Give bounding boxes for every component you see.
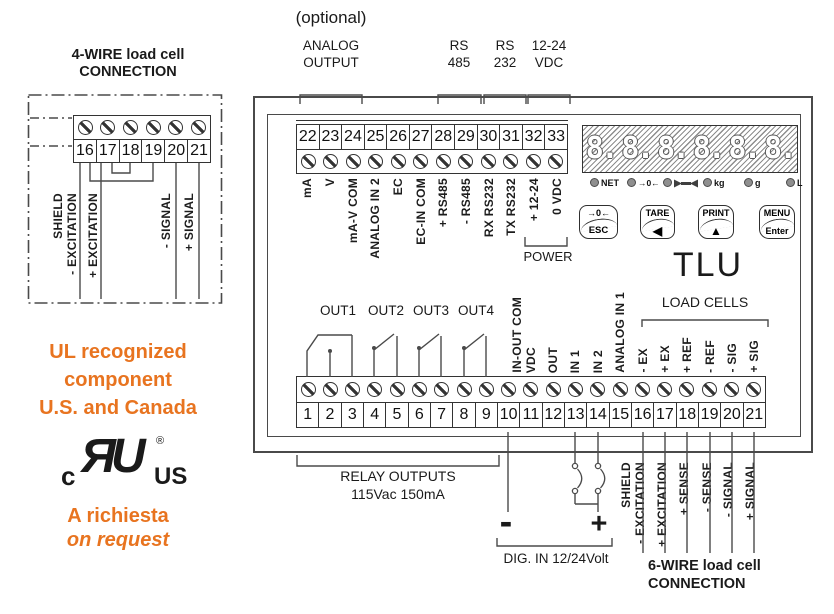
display-digit: 8. <box>726 127 760 171</box>
terminal-number: 26 <box>386 125 409 149</box>
four-wire-label-neg-signal: - SIGNAL <box>160 193 174 248</box>
terminal-label-pos-1224: + 12-24 <box>528 178 542 221</box>
g-led-label: g <box>755 178 761 188</box>
terminal-label-neg-ref: - REF <box>704 340 718 373</box>
terminal-label-pos-rs485: + RS485 <box>437 178 451 227</box>
top-terminal-numbers: 222324252627282930313233 <box>297 125 567 149</box>
screw-terminal-icon <box>635 382 650 397</box>
terminal-number: 5 <box>385 403 407 428</box>
ul-text-line3: U.S. and Canada <box>13 397 223 420</box>
tare-left-key[interactable]: TARE ◀ <box>640 205 675 239</box>
four-wire-number-row: 161718192021 <box>74 139 210 163</box>
terminal-label-neg-ex: - EX <box>637 348 651 373</box>
screw-terminal-icon <box>323 382 338 397</box>
terminal-label-analog-in2: ANALOG IN 2 <box>369 178 383 259</box>
terminal-number: 12 <box>542 403 564 428</box>
screw-terminal-icon <box>546 382 561 397</box>
rs485-label-1: RS <box>437 38 481 53</box>
print-key-label: PRINT <box>699 208 733 218</box>
terminal-number: 6 <box>408 403 430 428</box>
top-terminal-screws <box>297 149 567 174</box>
screw-terminal-icon <box>100 120 115 135</box>
model-name: TLU <box>653 246 763 285</box>
four-wire-title-line2: CONNECTION <box>30 64 226 80</box>
screw-terminal-icon <box>501 382 516 397</box>
terminal-label-pos-ref: + REF <box>681 337 695 373</box>
display-digit: 8. <box>762 127 796 171</box>
screw-terminal-icon <box>679 382 694 397</box>
terminal-number: 16 <box>631 403 653 428</box>
four-wire-title-line1: 4-WIRE load cell <box>30 47 226 63</box>
screw-terminal-icon <box>345 382 360 397</box>
four-wire-label-shield: SHIELD <box>52 193 66 239</box>
terminal-number: 7 <box>430 403 452 428</box>
ul-text-line2: component <box>13 369 223 392</box>
request-text-italian: A richiesta <box>13 505 223 528</box>
out3-label: OUT3 <box>408 303 454 318</box>
screw-terminal-icon <box>724 382 739 397</box>
screw-terminal-icon <box>436 154 451 169</box>
six-wire-label-shield: SHIELD <box>620 462 634 508</box>
kg-led-label: kg <box>714 178 725 188</box>
screw-terminal-icon <box>568 382 583 397</box>
bottom-terminal-strip: 123456789101112131415161718192021 <box>296 376 766 428</box>
screw-terminal-icon <box>613 382 628 397</box>
screw-terminal-icon <box>503 154 518 169</box>
menu-key-label: MENU <box>760 208 794 218</box>
ul-logo-us: US <box>154 463 187 491</box>
terminal-number: 18 <box>676 403 698 428</box>
screw-terminal-icon <box>434 382 449 397</box>
four-wire-label-pos-excitation: + EXCITATION <box>87 193 101 278</box>
terminal-number: 4 <box>363 403 385 428</box>
ul-logo-registered: ® <box>156 435 164 447</box>
terminal-label-neg-rs485: - RS485 <box>460 178 474 224</box>
stability-icon <box>674 179 698 188</box>
screw-terminal-icon <box>346 154 361 169</box>
terminal-label-mav-com: mA-V COM <box>347 178 361 243</box>
bottom-terminal-screws <box>297 377 765 402</box>
screw-terminal-icon <box>457 382 472 397</box>
l-led-icon <box>786 178 795 187</box>
screw-terminal-icon <box>413 154 428 169</box>
terminal-label-pos-sig: + SIG <box>748 340 762 373</box>
dig-in-minus-label: - <box>494 512 518 532</box>
terminal-label-rx-rs232: RX RS232 <box>483 178 497 237</box>
terminal-number: 21 <box>187 140 210 163</box>
g-led-icon <box>744 178 753 187</box>
screw-terminal-icon <box>301 154 316 169</box>
terminal-label-in1: IN 1 <box>569 350 583 373</box>
screw-terminal-icon <box>523 382 538 397</box>
ul-logo-ru-mark: ЯU <box>81 429 141 484</box>
kg-led-icon <box>703 178 712 187</box>
six-wire-label-neg-signal: - SIGNAL <box>722 462 736 517</box>
bottom-terminal-numbers: 123456789101112131415161718192021 <box>297 402 765 428</box>
screw-terminal-icon <box>367 382 382 397</box>
screw-terminal-icon <box>481 154 496 169</box>
zero-esc-key[interactable]: →0← ESC <box>579 205 618 239</box>
out1-label: OUT1 <box>315 303 361 318</box>
supply-vdc-label-1: 12-24 <box>525 38 573 53</box>
dig-in-label: DIG. IN 12/24Volt <box>488 551 624 566</box>
display-digit: 8. <box>655 127 689 171</box>
screw-terminal-icon <box>746 382 761 397</box>
net-led-label: NET <box>601 178 619 188</box>
screw-terminal-icon <box>368 154 383 169</box>
terminal-number: 18 <box>119 140 142 163</box>
terminal-label-inout-com: IN-OUT COM <box>511 297 525 373</box>
terminal-label-in2: IN 2 <box>592 350 606 373</box>
terminal-label-vdc: VDC <box>525 347 539 373</box>
screw-terminal-icon <box>301 382 316 397</box>
terminal-number: 2 <box>318 403 340 428</box>
terminal-label-analog-in1: ANALOG IN 1 <box>614 292 628 373</box>
print-up-key[interactable]: PRINT ▲ <box>698 205 734 239</box>
esc-key-label: ESC <box>580 225 617 237</box>
terminal-number: 31 <box>499 125 522 149</box>
terminal-number: 3 <box>341 403 363 428</box>
six-wire-title-line1: 6-WIRE load cell <box>648 558 761 574</box>
terminal-label-0vdc: 0 VDC <box>551 178 565 215</box>
net-led-icon <box>590 178 599 187</box>
screw-terminal-icon <box>323 154 338 169</box>
out4-label: OUT4 <box>453 303 499 318</box>
power-label: POWER <box>522 249 574 264</box>
four-wire-terminal-block: 161718192021 <box>73 115 211 163</box>
terminal-label-out: OUT <box>547 347 561 373</box>
six-wire-label-neg-sense: - SENSE <box>701 462 715 512</box>
terminal-number: 16 <box>74 140 96 163</box>
terminal-number: 17 <box>653 403 675 428</box>
dig-in-plus-label: + <box>586 512 612 536</box>
terminal-label-ma: mA <box>301 178 315 198</box>
rs485-label-2: 485 <box>437 55 481 70</box>
supply-vdc-label-2: VDC <box>525 55 573 70</box>
analog-output-label-2: OUTPUT <box>286 55 376 70</box>
screw-terminal-icon <box>391 154 406 169</box>
six-wire-label-pos-sense: + SENSE <box>678 462 692 515</box>
terminal-number: 13 <box>564 403 586 428</box>
six-wire-label-pos-signal: + SIGNAL <box>744 462 758 520</box>
terminal-label-tx-rs232: TX RS232 <box>505 178 519 236</box>
screw-terminal-icon <box>657 382 672 397</box>
terminal-number: 1 <box>297 403 318 428</box>
terminal-number: 22 <box>297 125 319 149</box>
terminal-number: 19 <box>141 140 164 163</box>
four-wire-screw-row <box>74 116 210 139</box>
terminal-number: 28 <box>431 125 454 149</box>
ul-cul-us-logo-icon: c ЯU ® US <box>55 437 195 495</box>
up-arrow-key-label: ▲ <box>699 225 733 237</box>
rs232-label-2: 232 <box>483 55 527 70</box>
terminal-number: 29 <box>454 125 477 149</box>
ul-logo-c: c <box>61 461 75 492</box>
display-digit: 8. <box>619 127 653 171</box>
screw-terminal-icon <box>412 382 427 397</box>
screw-terminal-icon <box>123 120 138 135</box>
optional-label: (optional) <box>276 8 386 28</box>
relay-rating-label: 115Vac 150mA <box>327 486 469 502</box>
terminal-number: 14 <box>586 403 608 428</box>
top-terminal-strip: 222324252627282930313233 <box>296 124 568 174</box>
screw-terminal-icon <box>526 154 541 169</box>
zero-key-label: →0← <box>580 208 617 218</box>
terminal-number: 25 <box>364 125 387 149</box>
terminal-number: 15 <box>609 403 631 428</box>
screw-terminal-icon <box>479 382 494 397</box>
terminal-number: 33 <box>544 125 567 149</box>
stability-led-icon <box>663 178 672 187</box>
terminal-number: 20 <box>720 403 742 428</box>
terminal-number: 21 <box>743 403 765 428</box>
terminal-number: 24 <box>341 125 364 149</box>
tare-key-label: TARE <box>641 208 674 218</box>
terminal-number: 30 <box>477 125 500 149</box>
terminal-number: 32 <box>522 125 545 149</box>
screw-terminal-icon <box>78 120 93 135</box>
terminal-label-ecin-com: EC-IN COM <box>415 178 429 245</box>
enter-key-label: Enter <box>760 225 794 237</box>
screw-terminal-icon <box>548 154 563 169</box>
menu-enter-key[interactable]: MENU Enter <box>759 205 795 239</box>
screw-terminal-icon <box>168 120 183 135</box>
rs232-label-1: RS <box>483 38 527 53</box>
screw-terminal-icon <box>590 382 605 397</box>
zero-led-icon <box>627 178 636 187</box>
terminal-label-pos-ex: + EX <box>659 345 673 373</box>
relay-outputs-label: RELAY OUTPUTS <box>327 468 469 484</box>
wiring-diagram-page: 4-WIRE load cell CONNECTION 161718192021… <box>0 0 834 614</box>
screw-terminal-icon <box>146 120 161 135</box>
screw-terminal-icon <box>390 382 405 397</box>
out2-label: OUT2 <box>363 303 409 318</box>
terminal-number: 9 <box>475 403 497 428</box>
six-wire-label-neg-excitation: - EXCITATION <box>634 462 648 544</box>
terminal-number: 27 <box>409 125 432 149</box>
terminal-label-ec: EC <box>392 178 406 195</box>
screw-terminal-icon <box>458 154 473 169</box>
six-wire-label-pos-excitation: + EXCITATION <box>656 462 670 547</box>
terminal-label-v: V <box>324 178 338 186</box>
analog-output-label-1: ANALOG <box>286 38 376 53</box>
seven-segment-display: 8. 8. 8. 8. 8. 8. <box>582 125 798 173</box>
terminal-number: 11 <box>519 403 541 428</box>
terminal-label-neg-sig: - SIG <box>726 343 740 373</box>
left-arrow-key-label: ◀ <box>641 225 674 237</box>
terminal-number: 17 <box>96 140 119 163</box>
request-text-english: on request <box>13 529 223 552</box>
screw-terminal-icon <box>702 382 717 397</box>
display-digit: 8. <box>691 127 725 171</box>
terminal-number: 19 <box>698 403 720 428</box>
terminal-number: 20 <box>164 140 187 163</box>
terminal-number: 8 <box>452 403 474 428</box>
terminal-number: 23 <box>319 125 342 149</box>
six-wire-title-line2: CONNECTION <box>648 576 745 592</box>
ul-text-line1: UL recognized <box>13 341 223 364</box>
zero-led-label: →0← <box>638 178 660 188</box>
four-wire-label-neg-excitation: - EXCITATION <box>66 193 80 275</box>
load-cells-label: LOAD CELLS <box>645 294 765 310</box>
top-strip-upper-line <box>296 120 568 121</box>
four-wire-label-pos-signal: + SIGNAL <box>183 193 197 251</box>
display-digit: 8. <box>584 127 618 171</box>
l-led-label: L <box>797 178 803 188</box>
terminal-number: 10 <box>497 403 519 428</box>
screw-terminal-icon <box>191 120 206 135</box>
